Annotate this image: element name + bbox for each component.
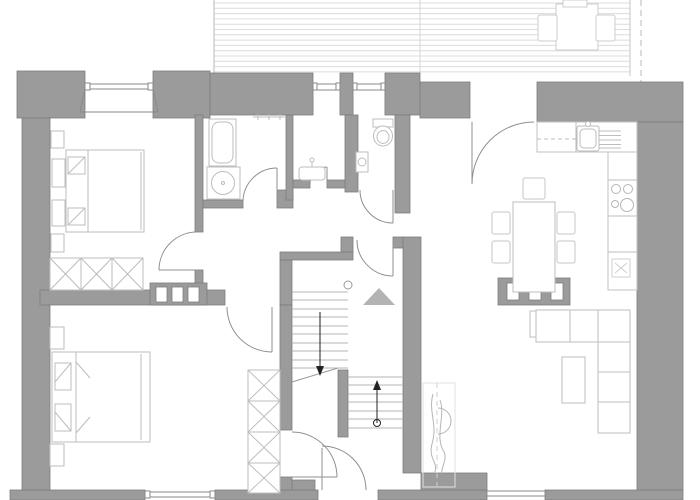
cooktop-burner — [621, 199, 634, 212]
window-shower-cap-left — [313, 83, 317, 90]
terrace-table — [556, 4, 598, 50]
bathtub-inner — [212, 122, 233, 163]
door-bath-arc — [243, 168, 277, 202]
wall-top-mid-b — [385, 73, 420, 115]
wall-corridor-south-leg — [280, 260, 292, 305]
bed1-nightstand-bottom — [51, 234, 64, 252]
wall-entry-jamb-left — [341, 237, 353, 252]
door-building-entrance-arc — [322, 446, 366, 490]
door-bed1-arc — [159, 232, 197, 270]
stair-break-line — [292, 368, 338, 382]
wall-bottom-3 — [378, 490, 487, 500]
dining-chair — [557, 241, 575, 263]
wall-top-left-a — [17, 71, 85, 118]
wall-living-west — [403, 237, 421, 473]
window-wc-cap-right — [381, 83, 385, 90]
wall-bottom-pier-entry — [292, 480, 315, 490]
terrace-chair-left — [538, 15, 557, 41]
plant-leaf — [431, 394, 436, 472]
wall-entry-jamb-right — [393, 237, 403, 248]
wall-bottom-1 — [10, 490, 145, 500]
door-wc-arc — [360, 190, 393, 223]
bed1-radiator-bottom — [52, 200, 65, 226]
bed1-radiator-top — [52, 159, 65, 187]
wall-shower-south-a — [293, 180, 310, 188]
entrance-triangle-marker — [363, 288, 395, 305]
flue-left-3 — [188, 287, 199, 302]
bed2-nightstand-top — [50, 327, 64, 349]
markers-layer — [363, 288, 395, 305]
door-bed2-arc — [227, 307, 272, 352]
wall-bed1-east-a — [195, 115, 203, 232]
dining-chair — [492, 241, 510, 263]
wall-bath-south — [203, 200, 243, 208]
dining-chair — [557, 212, 575, 234]
wall-wc-east — [395, 115, 410, 213]
window-wc-cap-left — [353, 83, 357, 90]
wall-stair-newel — [338, 370, 348, 437]
window-bed1-cap-left — [85, 83, 90, 90]
wall-stairwell-west-a — [280, 305, 292, 430]
bed2-pillow-2 — [55, 404, 71, 431]
wall-top-right-b — [537, 82, 683, 122]
wall-top-left-b — [153, 71, 210, 118]
wall-corridor-south — [280, 252, 353, 260]
door-entry-arc — [357, 240, 393, 276]
window-shower-cap-right — [336, 83, 340, 90]
wall-bath-shower-divider — [286, 115, 293, 200]
wall-bottom-4 — [545, 490, 683, 500]
stair-post-circle — [344, 281, 352, 289]
washing-machine-center — [222, 182, 225, 185]
dining-table — [513, 202, 555, 292]
dining-chair — [523, 178, 545, 199]
plant-box — [423, 383, 455, 487]
kitchen-sink-basin — [580, 129, 596, 148]
kitchen-tap — [586, 122, 591, 127]
door-terrace-arc — [472, 122, 534, 184]
window-bed2-cap-left — [145, 491, 150, 498]
coffee-table — [562, 357, 585, 403]
washbasin-tap — [310, 158, 314, 162]
flue-left-1 — [156, 287, 167, 302]
sofa-armrest — [530, 311, 536, 337]
toilet-bowl-inner — [377, 131, 389, 144]
wall-top-mid-a — [210, 73, 313, 115]
wall-stairwell-west-b — [280, 477, 292, 490]
floor-plan — [0, 0, 700, 500]
terrace-chair-right — [596, 15, 615, 41]
window-bed1-cap-right — [148, 83, 153, 90]
wall-top-right-a — [420, 82, 470, 118]
bed2-pillow-1 — [55, 363, 71, 390]
window-bed2-cap-right — [210, 491, 215, 498]
cooktop-burner — [612, 201, 619, 208]
wall-shower-south-b — [327, 180, 345, 188]
wall-top-mid-pier — [340, 73, 353, 115]
floor-plan-canvas — [0, 0, 700, 500]
bed2-nightstand-bottom — [50, 444, 64, 466]
wc-corner-sink-basin — [358, 158, 366, 166]
bed1-nightstand-top — [51, 131, 64, 148]
terrace-chair-top — [563, 0, 587, 7]
door-nook-stair-arc — [292, 432, 337, 477]
wall-right — [637, 122, 683, 490]
washbasin — [299, 167, 325, 180]
dining-chair — [492, 212, 510, 234]
cooktop-burner — [624, 185, 633, 194]
plant-leaf — [440, 400, 445, 474]
flue-left-2 — [172, 287, 183, 302]
cooktop-burner — [612, 185, 621, 194]
